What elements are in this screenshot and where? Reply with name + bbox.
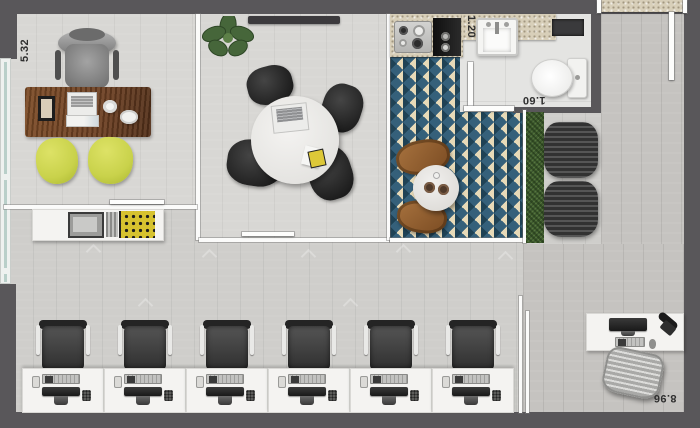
workstation-desk xyxy=(104,368,186,413)
chair-armrest-right xyxy=(496,325,500,355)
chair-armrest-right xyxy=(168,325,172,355)
office-sliding-door xyxy=(110,200,164,204)
monitor xyxy=(288,387,326,396)
workstation-unit xyxy=(186,320,268,413)
wall-bathroom-corridor xyxy=(591,12,601,113)
cooktop xyxy=(394,21,432,53)
desk-accessory xyxy=(328,390,337,401)
workstation-unit xyxy=(104,320,186,413)
workstation-desk xyxy=(186,368,268,413)
dimension-label-bathroom-width: 1.20 xyxy=(464,15,478,59)
chair-armrest-left xyxy=(364,325,368,355)
desk-dish xyxy=(120,110,138,124)
desk-accessory xyxy=(246,390,255,401)
window-glass xyxy=(4,274,7,282)
glass-partition-manager-2 xyxy=(526,311,529,413)
workstation-desk xyxy=(350,368,432,413)
chair-armrest-right xyxy=(86,325,90,355)
chair-seat xyxy=(65,44,109,88)
keyboard-module xyxy=(127,376,135,383)
window-glass xyxy=(4,62,7,174)
lounge-chair xyxy=(544,181,598,237)
dimension-label-office: 5.32 xyxy=(18,16,32,62)
toilet-button xyxy=(575,75,580,80)
workstation-unit xyxy=(350,320,432,413)
monitor-stand xyxy=(218,396,232,405)
bathroom-door xyxy=(468,62,473,108)
floor-plan: 5.32 1.20 1.60 8.96 xyxy=(0,0,700,428)
meeting-documents-yellow xyxy=(309,150,326,168)
tv-panel xyxy=(248,16,340,24)
workstation-desk xyxy=(268,368,350,413)
desk-phone xyxy=(278,376,286,388)
chair-seat xyxy=(42,326,84,370)
chair-armrest-right xyxy=(414,325,418,355)
monitor-stand xyxy=(382,396,396,405)
faucet-handle xyxy=(504,22,509,27)
wall-right xyxy=(684,0,700,428)
desk-phone xyxy=(32,376,40,388)
meeting-laptop xyxy=(271,102,310,134)
keyboard xyxy=(288,374,326,384)
monitor-stand xyxy=(300,396,314,405)
desk-accessory xyxy=(164,390,173,401)
keyboard-module xyxy=(618,339,626,346)
plate xyxy=(424,182,435,193)
books-stack xyxy=(106,212,118,237)
chair-headrest xyxy=(69,28,105,41)
keyboard xyxy=(42,374,80,384)
chair-armrest-right xyxy=(250,325,254,355)
dimension-label-open-area: 8.96 xyxy=(644,391,686,405)
chair-armrest-left xyxy=(55,50,61,80)
manager-desk xyxy=(586,313,684,351)
task-chair xyxy=(118,320,172,372)
desk-phone xyxy=(442,376,450,388)
bottle xyxy=(441,43,450,52)
chair-seat xyxy=(206,326,248,370)
task-chair xyxy=(200,320,254,372)
task-chair xyxy=(446,320,500,372)
workstation-unit xyxy=(432,320,514,413)
meeting-sliding-door xyxy=(242,232,294,236)
desk-accessory xyxy=(492,390,501,401)
monitor xyxy=(124,387,162,396)
monitor xyxy=(42,387,80,396)
entry-door-post-right xyxy=(683,0,687,13)
monitor xyxy=(206,387,244,396)
chair-seat xyxy=(452,326,494,370)
chair-armrest-left xyxy=(36,325,40,355)
wall-bottom xyxy=(0,412,700,428)
glass-wall-kitchen-front xyxy=(390,238,523,242)
keyboard xyxy=(124,374,162,384)
manager-monitor-stand xyxy=(621,331,635,336)
printer-tray xyxy=(73,217,97,232)
burner xyxy=(412,38,423,49)
yellow-boxes xyxy=(119,211,155,238)
monitor-stand xyxy=(464,396,478,405)
desk-accessory xyxy=(82,390,91,401)
chair-armrest-left xyxy=(282,325,286,355)
desk-accessory xyxy=(410,390,419,401)
monitor-stand xyxy=(136,396,150,405)
chair-armrest-left xyxy=(446,325,450,355)
burner xyxy=(399,39,407,47)
entry-threshold xyxy=(601,0,684,12)
task-chair xyxy=(282,320,336,372)
bathroom-sink xyxy=(476,18,518,56)
printer xyxy=(68,212,104,238)
chair-armrest-left xyxy=(200,325,204,355)
workstation-unit xyxy=(22,320,104,413)
burner xyxy=(413,25,425,37)
task-chair xyxy=(364,320,418,372)
workstation-unit xyxy=(268,320,350,413)
laptop-keys xyxy=(71,96,93,107)
chair-seat xyxy=(370,326,412,370)
bottle xyxy=(441,32,450,41)
executive-chair xyxy=(55,28,119,90)
keyboard-module xyxy=(45,376,53,383)
burner xyxy=(399,26,408,35)
chair-seat xyxy=(288,326,330,370)
glass-wall-meeting-front xyxy=(199,238,389,242)
desk-phone xyxy=(196,376,204,388)
cup xyxy=(433,172,440,179)
monitor-stand xyxy=(54,396,68,405)
bathroom-door-threshold xyxy=(464,106,514,111)
chair-armrest-left xyxy=(118,325,122,355)
monitor xyxy=(452,387,490,396)
keyboard-module xyxy=(209,376,217,383)
window-left xyxy=(0,58,11,284)
plant xyxy=(202,16,254,60)
task-chair xyxy=(36,320,90,372)
keyboard-module xyxy=(373,376,381,383)
plate xyxy=(438,184,449,195)
hedge xyxy=(526,112,544,243)
chair-armrest-right xyxy=(113,50,119,80)
desk-phone xyxy=(360,376,368,388)
desk-magazine xyxy=(66,115,99,127)
wall-top-left-corner xyxy=(0,13,17,59)
workstation-desk xyxy=(22,368,104,413)
wall-left-lower xyxy=(0,284,16,414)
window-glass xyxy=(4,180,7,268)
desk-laptop xyxy=(67,92,97,116)
workstation-row xyxy=(22,320,514,413)
faucet-handle xyxy=(486,22,491,27)
photo-frame xyxy=(38,96,55,121)
entry-door-post-left xyxy=(597,0,601,13)
chair-armrest-right xyxy=(332,325,336,355)
monitor xyxy=(370,387,408,396)
desk-mug xyxy=(103,100,117,113)
mouse xyxy=(649,339,656,349)
keyboard-module xyxy=(455,376,463,383)
workstation-desk xyxy=(432,368,514,413)
keyboard xyxy=(206,374,244,384)
manager-keyboard xyxy=(615,337,645,347)
keyboard-module xyxy=(291,376,299,383)
glass-partition-manager-1 xyxy=(519,296,522,413)
toilet-bowl xyxy=(531,59,573,97)
faucet xyxy=(495,22,499,34)
laptop-keys xyxy=(276,107,303,123)
bathroom-niche xyxy=(552,19,584,36)
dimension-label-bathroom-depth: 1.60 xyxy=(514,93,554,107)
desk-phone xyxy=(114,376,122,388)
minibar-appliance xyxy=(433,18,461,56)
keyboard xyxy=(370,374,408,384)
entry-door-leaf xyxy=(669,12,674,80)
lounge-chair xyxy=(544,122,598,178)
manager-monitor xyxy=(609,318,647,331)
chair-seat xyxy=(124,326,166,370)
keyboard xyxy=(452,374,490,384)
